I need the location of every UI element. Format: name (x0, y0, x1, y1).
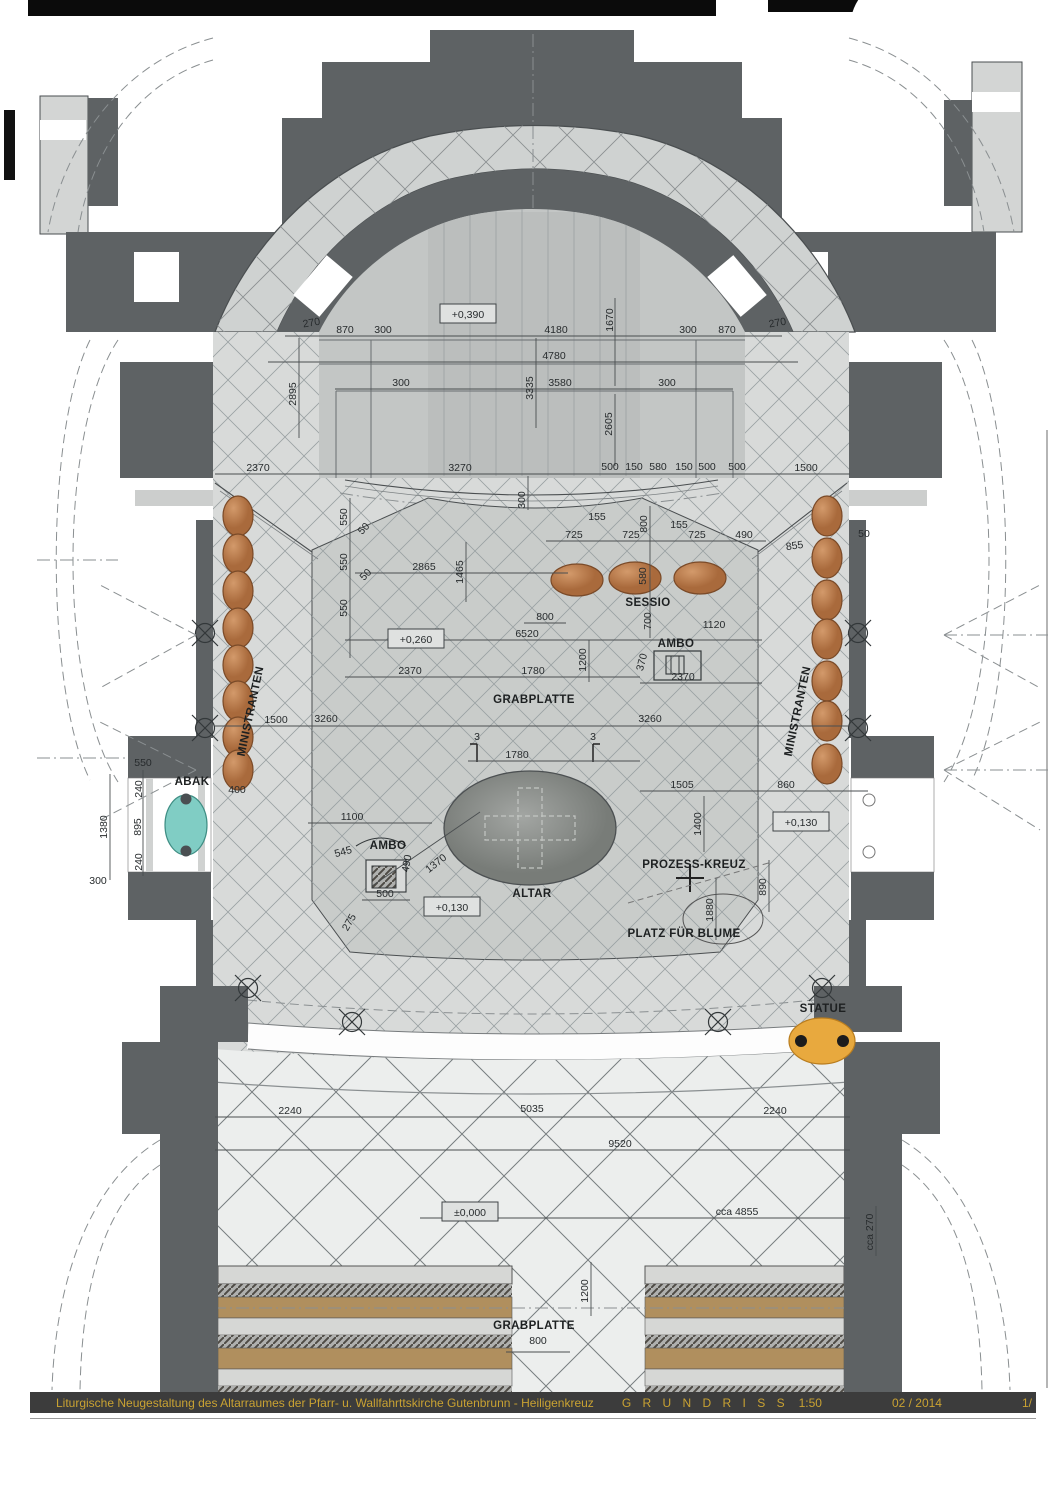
statue (789, 1018, 855, 1064)
dimension-label: 400 (228, 784, 246, 796)
dimension-label: 490 (735, 529, 753, 541)
dimension-label: 9520 (608, 1138, 632, 1150)
feature-label: GRABPLATTE (493, 1320, 575, 1332)
dimension-label: 3335 (524, 376, 536, 400)
feature-label: PROZESS-KREUZ (642, 859, 746, 871)
dimension-label: 300 (374, 324, 392, 336)
dimension-label: 2370 (398, 665, 422, 677)
elevation-label: ±0,000 (454, 1207, 486, 1219)
feature-label: AMBO (658, 638, 695, 650)
dimension-label: 2370 (671, 671, 695, 683)
dimension-label: 580 (649, 461, 667, 473)
dimension-label: 1880 (704, 898, 716, 922)
feature-label: PLATZ FÜR BLUME (627, 927, 740, 940)
dimension-label: 1100 (341, 811, 364, 823)
dimension-label: 2895 (287, 382, 299, 406)
dimension-label: 3580 (548, 377, 572, 389)
dimension-label: 1780 (505, 749, 529, 761)
dimension-label: 155 (588, 511, 606, 523)
dimension-label: 2605 (603, 412, 615, 436)
dimension-label: 150 (625, 461, 643, 473)
feature-label: SESSIO (625, 597, 670, 609)
dimension-label: 155 (670, 519, 688, 531)
dimension-label: 2370 (246, 462, 270, 474)
dimension-label: 860 (777, 779, 795, 791)
dimension-label: cca 270 (864, 1213, 876, 1250)
dimension-label: 1380 (98, 815, 110, 839)
dimension-label: 1465 (454, 560, 466, 584)
feature-label: ABAK (175, 776, 210, 788)
dimension-label: 3 (474, 731, 480, 743)
dimension-label: 2240 (763, 1105, 787, 1117)
dimension-label: 870 (718, 324, 736, 336)
dimension-label: 240 (133, 853, 145, 871)
dimension-label: 1120 (703, 619, 726, 631)
dimension-label: 300 (679, 324, 697, 336)
dimension-label: 890 (757, 878, 769, 896)
dimension-label: 1400 (692, 812, 704, 836)
floor-plan-drawing: 2708703004180167030087027047802895333535… (0, 0, 1061, 1500)
dimension-label: 1505 (670, 779, 694, 791)
title-drawing: G R U N D R I S S (622, 1396, 789, 1410)
elevation-label: +0,390 (452, 309, 485, 321)
dimension-label: 800 (638, 515, 650, 533)
dimension-label: 1200 (577, 648, 589, 672)
elevation-label: +0,130 (785, 817, 818, 829)
dimension-label: 895 (132, 818, 144, 836)
dimension-label: 1500 (264, 714, 288, 726)
altar (444, 771, 616, 885)
dimension-label: 3 (590, 731, 596, 743)
dimension-label: 1780 (521, 665, 545, 677)
dimension-label: 3260 (314, 713, 338, 725)
title-bar: Liturgische Neugestaltung des Altarraume… (30, 1392, 1036, 1413)
dimension-label: 700 (642, 612, 654, 630)
title-bar-underline (30, 1418, 1036, 1419)
title-date: 02 / 2014 (892, 1396, 942, 1410)
abak-table (165, 794, 207, 857)
dimension-label: 240 (133, 780, 145, 798)
dimension-label: 2865 (412, 561, 436, 573)
dimension-label: 725 (688, 529, 706, 541)
dimension-label: 855 (785, 539, 804, 553)
dimension-label: 4180 (544, 324, 568, 336)
dimension-label: 500 (376, 888, 394, 900)
floor-plan-page: 2708703004180167030087027047802895333535… (0, 0, 1061, 1500)
dimension-label: cca 4855 (716, 1206, 759, 1218)
feature-label: AMBO (370, 840, 407, 852)
dimension-label: 2240 (278, 1105, 302, 1117)
elevation-label: +0,130 (436, 902, 469, 914)
feature-label: STATUE (800, 1003, 847, 1015)
dimension-label: 4780 (542, 350, 566, 362)
dimension-label: 550 (338, 508, 350, 526)
dimension-label: 500 (698, 461, 716, 473)
dimension-label: 500 (728, 461, 746, 473)
elevation-label: +0,260 (400, 634, 433, 646)
dimension-label: 725 (565, 529, 583, 541)
dimension-label: 800 (529, 1335, 547, 1347)
dimension-label: 800 (536, 611, 554, 623)
title-scale: 1:50 (799, 1396, 822, 1410)
dimension-label: 50 (858, 528, 870, 540)
dimension-label: 550 (338, 599, 350, 617)
dimension-label: 300 (516, 491, 528, 509)
dimension-label: 3270 (448, 462, 472, 474)
dimension-label: 300 (392, 377, 410, 389)
dimension-label: 1500 (794, 462, 818, 474)
dimension-label: 870 (336, 324, 354, 336)
feature-label: ALTAR (512, 888, 552, 900)
title-project: Liturgische Neugestaltung des Altarraume… (56, 1396, 622, 1410)
feature-label: GRABPLATTE (493, 694, 575, 706)
dimension-label: 580 (637, 567, 649, 585)
dimension-label: 300 (658, 377, 676, 389)
dimension-label: 150 (675, 461, 693, 473)
dimension-label: 5035 (520, 1103, 544, 1115)
dimension-label: 500 (601, 461, 619, 473)
pew-block-left (218, 1266, 512, 1392)
dimension-label: 3260 (638, 713, 662, 725)
pew-block-right (645, 1266, 844, 1392)
dimension-label: 550 (134, 757, 152, 769)
dimension-label: 6520 (515, 628, 539, 640)
dimension-label: 550 (338, 553, 350, 571)
title-page: 1/ (1022, 1396, 1032, 1410)
dimension-label: 1200 (579, 1279, 591, 1303)
dimension-label: 1670 (604, 308, 616, 332)
dimension-label: 300 (89, 875, 107, 887)
